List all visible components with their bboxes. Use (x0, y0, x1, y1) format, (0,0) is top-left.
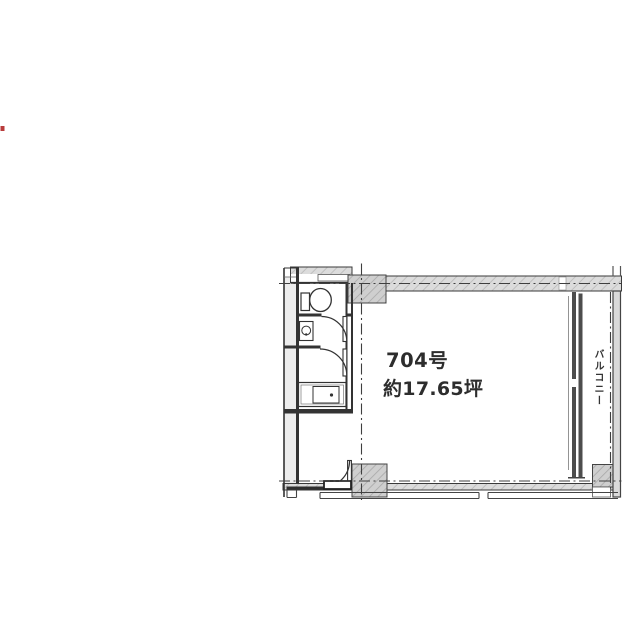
balcony-label: バルコニー (592, 349, 603, 407)
top-wall-left (291, 267, 353, 283)
washbasin-icon (300, 322, 314, 341)
page-canvas: 704号 約17.65坪 バルコニー (0, 0, 630, 630)
floor-plan-drawing (0, 0, 630, 630)
washroom-door-swing-arc (322, 317, 347, 342)
entrance-threshold (324, 481, 351, 489)
kitchen-door-swing-arc (320, 349, 347, 376)
neighbor-wall-lines (287, 490, 618, 499)
balcony-railing (613, 266, 621, 497)
kitchen-sink-icon (299, 383, 347, 407)
unit-number-label: 704号 (386, 350, 448, 371)
pipe-shaft (285, 277, 297, 489)
red-bullet-marker (1, 126, 5, 131)
toilet-icon (301, 289, 331, 312)
unit-area-label: 約17.65坪 (383, 379, 483, 400)
balcony-window-wall (568, 292, 585, 478)
column-top-left (348, 275, 386, 303)
